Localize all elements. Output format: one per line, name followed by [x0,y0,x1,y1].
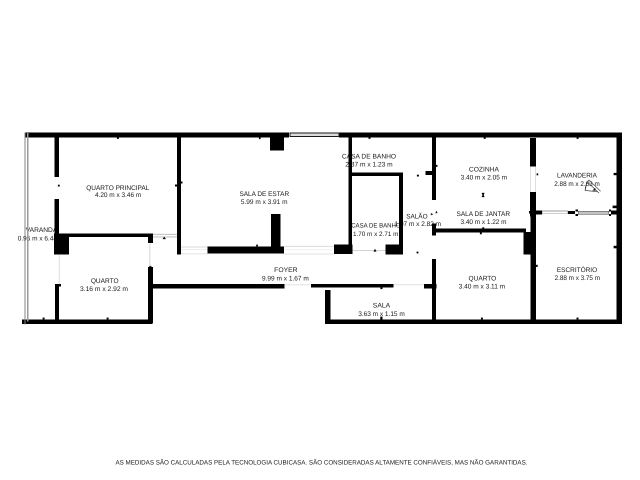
svg-text:SALÃO: SALÃO [406,212,427,220]
svg-text:COZINHA: COZINHA [469,167,500,174]
svg-text:9.99 m x 1.67 m: 9.99 m x 1.67 m [262,275,309,282]
svg-text:5.99 m x 3.91 m: 5.99 m x 3.91 m [241,199,288,206]
svg-text:SALA: SALA [373,303,391,310]
svg-text:SALA DE ESTAR: SALA DE ESTAR [239,191,289,198]
svg-text:VARANDA: VARANDA [26,227,58,234]
svg-text:FOYER: FOYER [274,267,298,274]
svg-text:3.40 m x 3.11 m: 3.40 m x 3.11 m [459,284,506,291]
svg-text:3.40 m x 1.22 m: 3.40 m x 1.22 m [461,219,507,226]
svg-text:LAVANDERIA: LAVANDERIA [557,172,597,179]
svg-text:ESCRITÓRIO: ESCRITÓRIO [557,266,597,274]
svg-text:2.88 m x 3.75 m: 2.88 m x 3.75 m [555,275,601,282]
svg-text:1.70 m x 2.71 m: 1.70 m x 2.71 m [353,231,399,238]
svg-text:3.16 m x 2.92 m: 3.16 m x 2.92 m [80,286,128,293]
svg-text:4.20 m x 3.46 m: 4.20 m x 3.46 m [95,192,142,199]
svg-text:QUARTO: QUARTO [91,278,119,285]
svg-text:CASA DE BANHO: CASA DE BANHO [351,223,400,230]
svg-text:2.87 m x 1.23 m: 2.87 m x 1.23 m [345,161,393,168]
svg-text:QUARTO: QUARTO [469,276,497,283]
svg-text:SALA DE JANTAR: SALA DE JANTAR [457,211,511,218]
svg-text:3.40 m x 2.05 m: 3.40 m x 2.05 m [461,175,508,182]
svg-text:QUARTO PRINCIPAL: QUARTO PRINCIPAL [86,185,149,192]
svg-text:AS MEDIDAS SÃO CALCULADAS PELA: AS MEDIDAS SÃO CALCULADAS PELA TECNOLOGI… [116,459,528,467]
